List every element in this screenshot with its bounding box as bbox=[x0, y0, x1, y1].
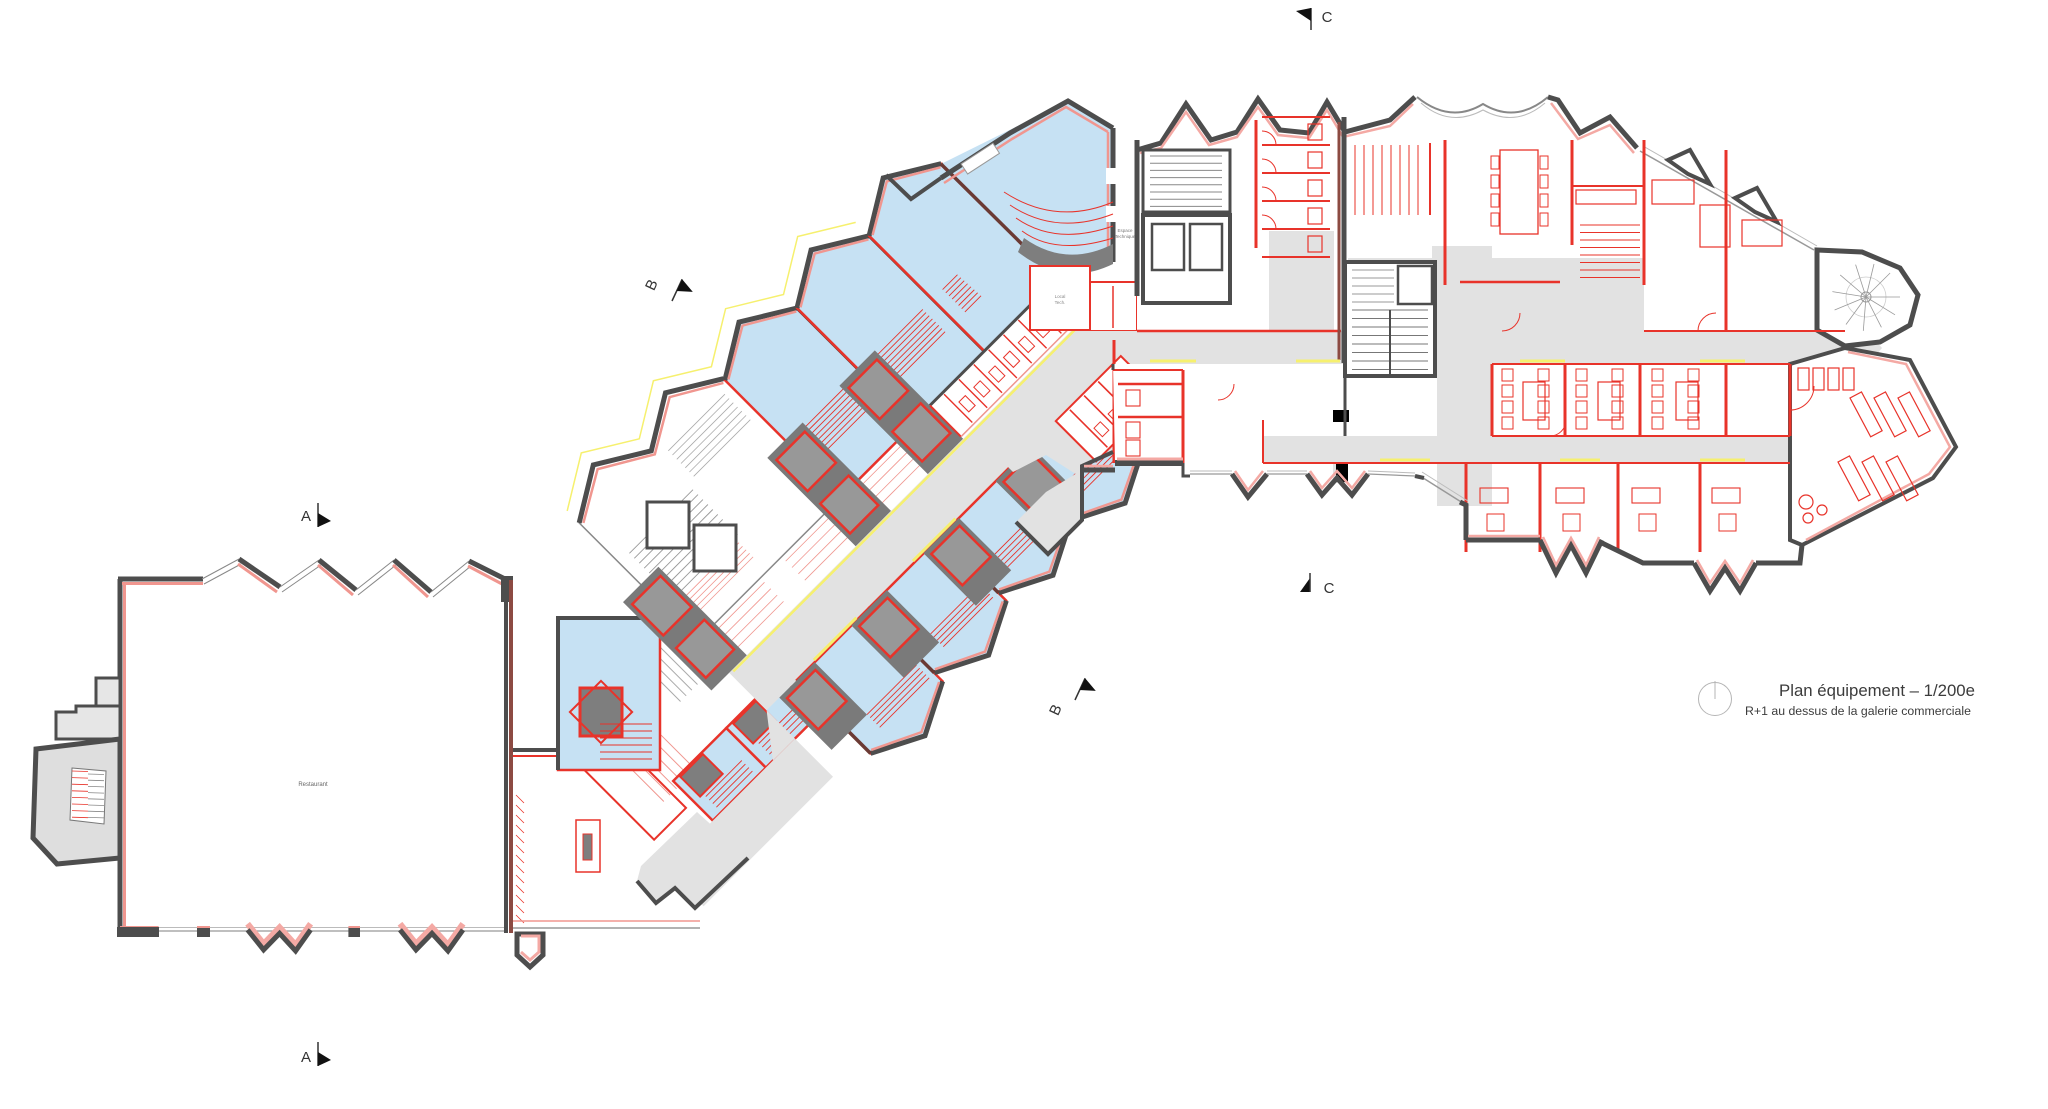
svg-text:Restaurant: Restaurant bbox=[298, 782, 328, 788]
svg-text:C: C bbox=[1322, 9, 1333, 26]
svg-text:Local: Local bbox=[1055, 294, 1066, 299]
svg-text:R+1 au dessus de la galerie co: R+1 au dessus de la galerie commerciale bbox=[1745, 704, 1971, 718]
svg-text:Espace: Espace bbox=[1117, 228, 1133, 233]
svg-text:Plan équipement – 1/200e: Plan équipement – 1/200e bbox=[1779, 681, 1975, 700]
svg-text:C: C bbox=[1324, 580, 1335, 597]
svg-text:A: A bbox=[301, 508, 311, 525]
svg-text:A: A bbox=[301, 1049, 311, 1066]
svg-text:Technique: Technique bbox=[1115, 234, 1136, 239]
svg-text:Tech.: Tech. bbox=[1055, 300, 1066, 305]
